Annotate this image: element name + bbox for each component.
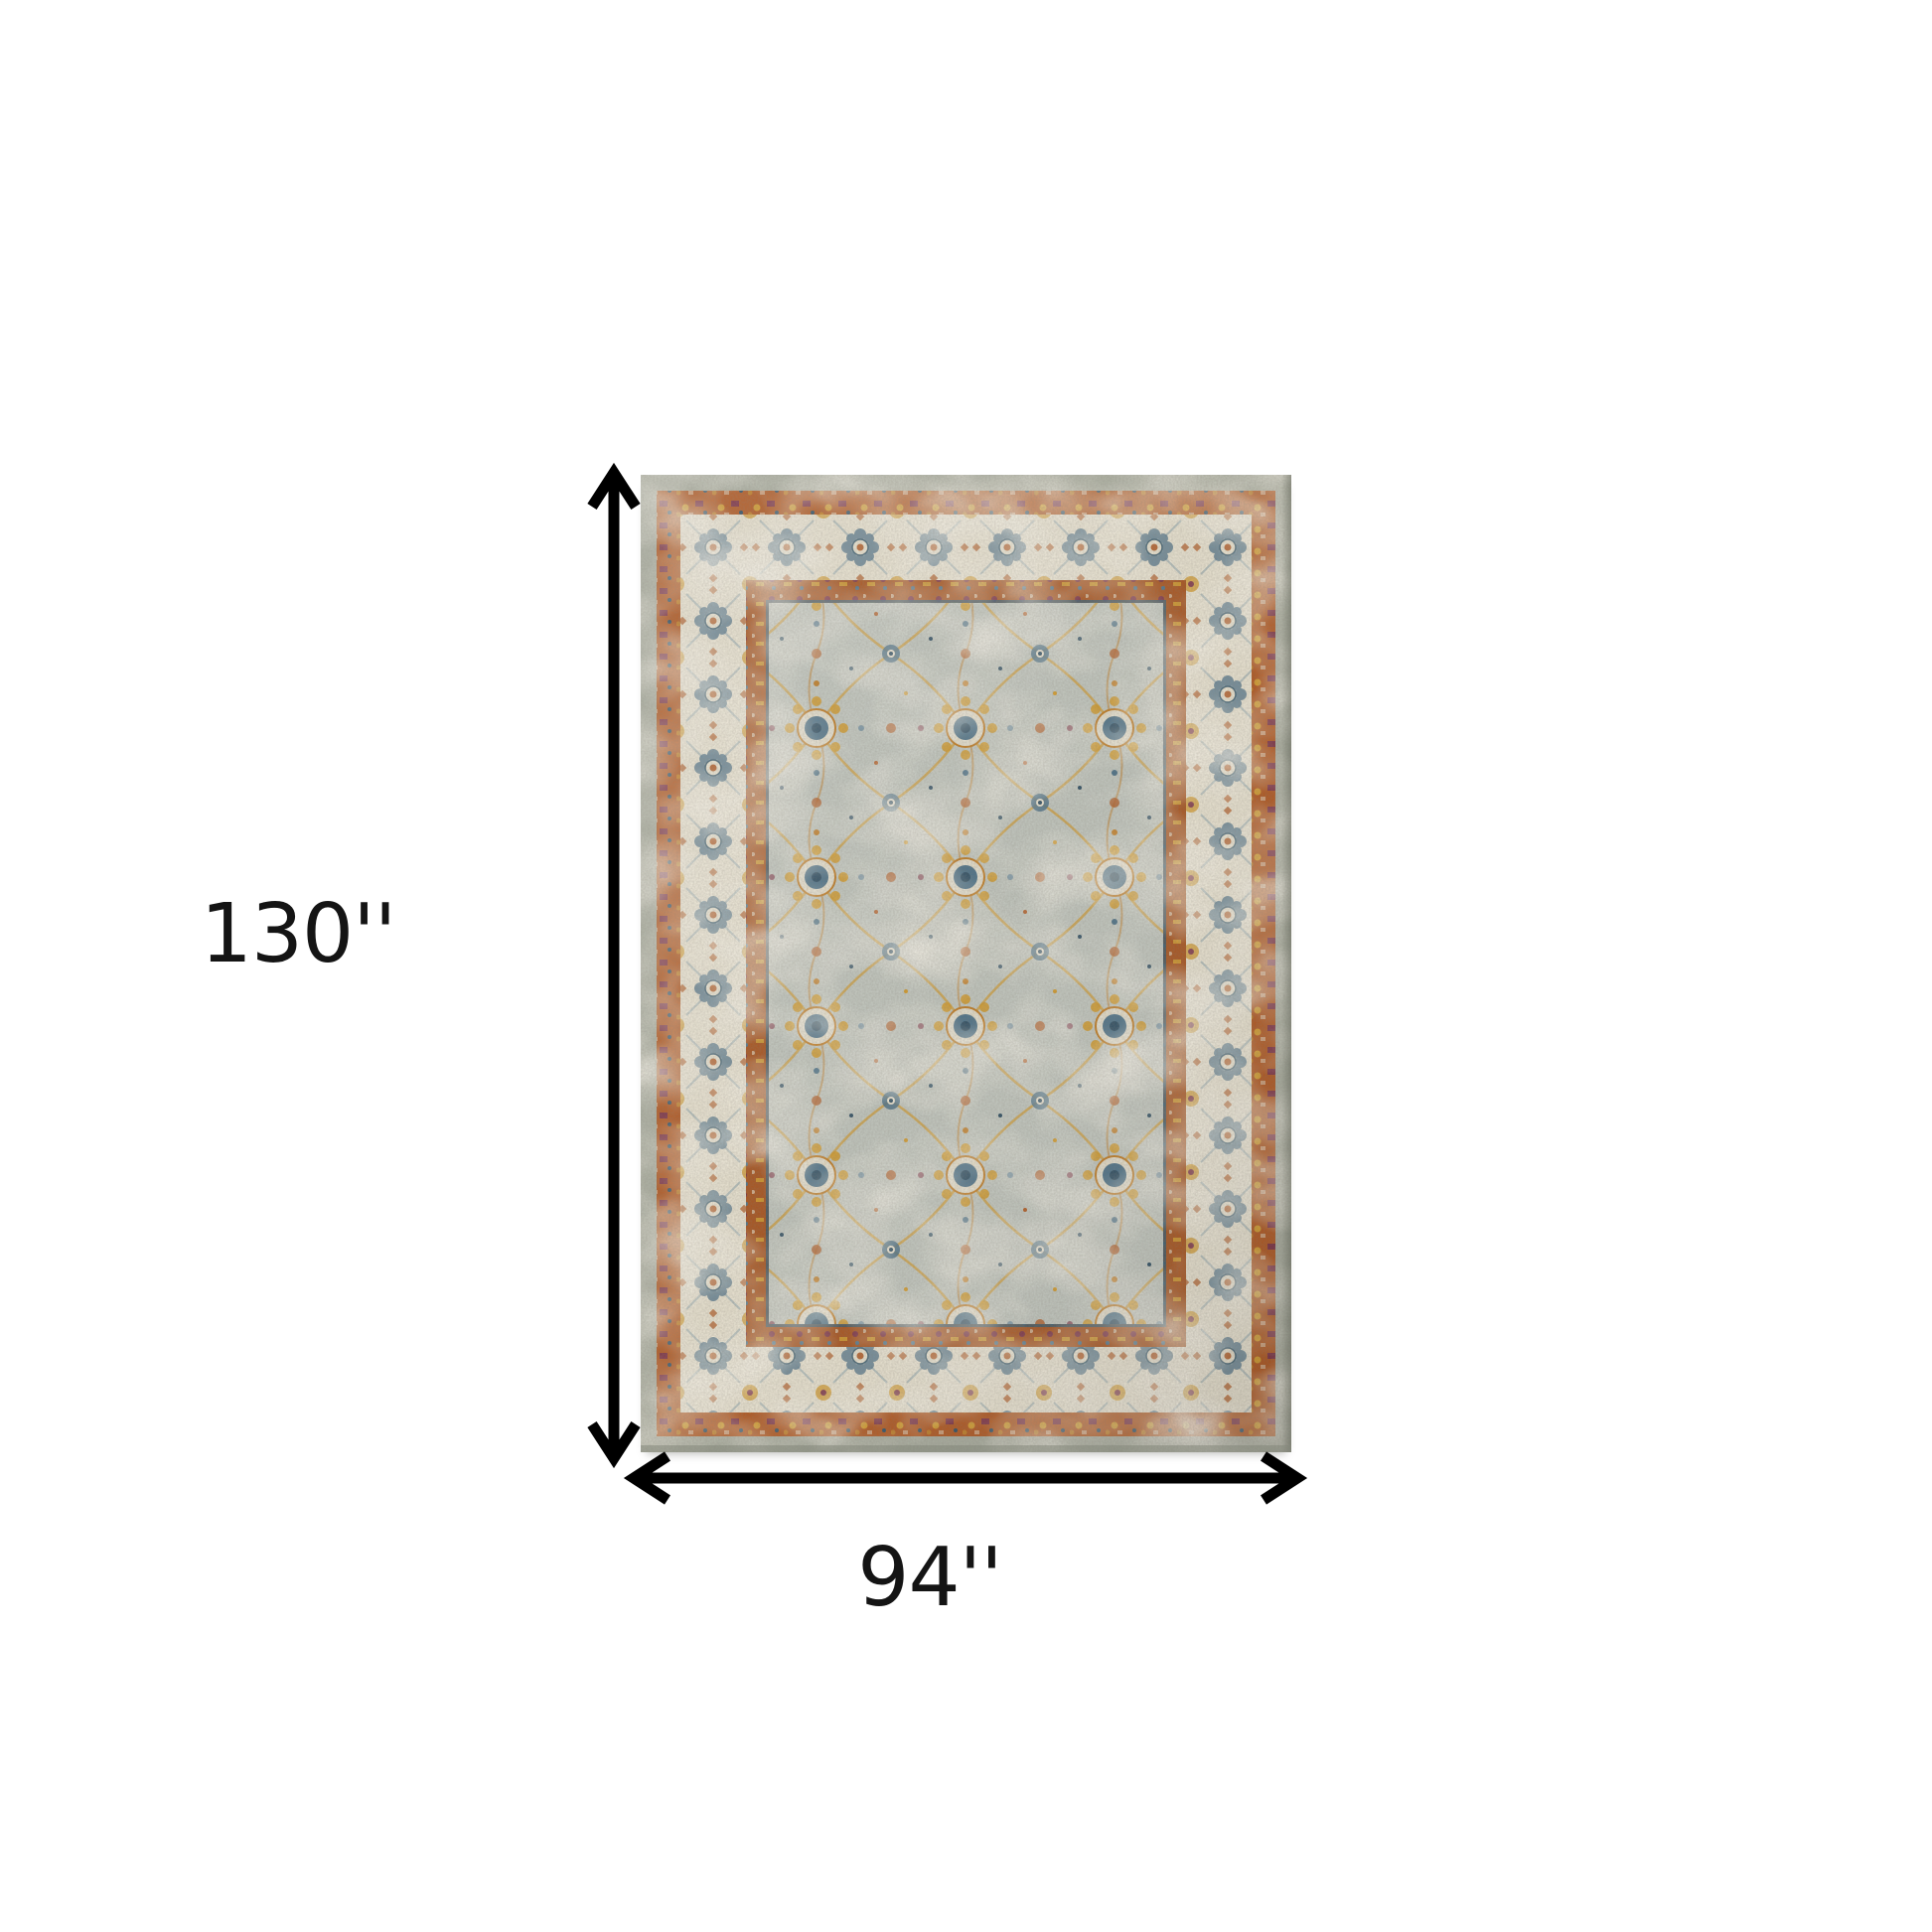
- width-arrow-icon: [622, 1448, 1309, 1508]
- height-arrow-icon: [584, 461, 648, 1470]
- height-dimension-label: 130'': [159, 890, 437, 979]
- dimension-diagram: 130'' 94'': [0, 0, 1932, 1932]
- width-dimension-label: 94'': [791, 1534, 1069, 1623]
- rug-image: [641, 475, 1291, 1452]
